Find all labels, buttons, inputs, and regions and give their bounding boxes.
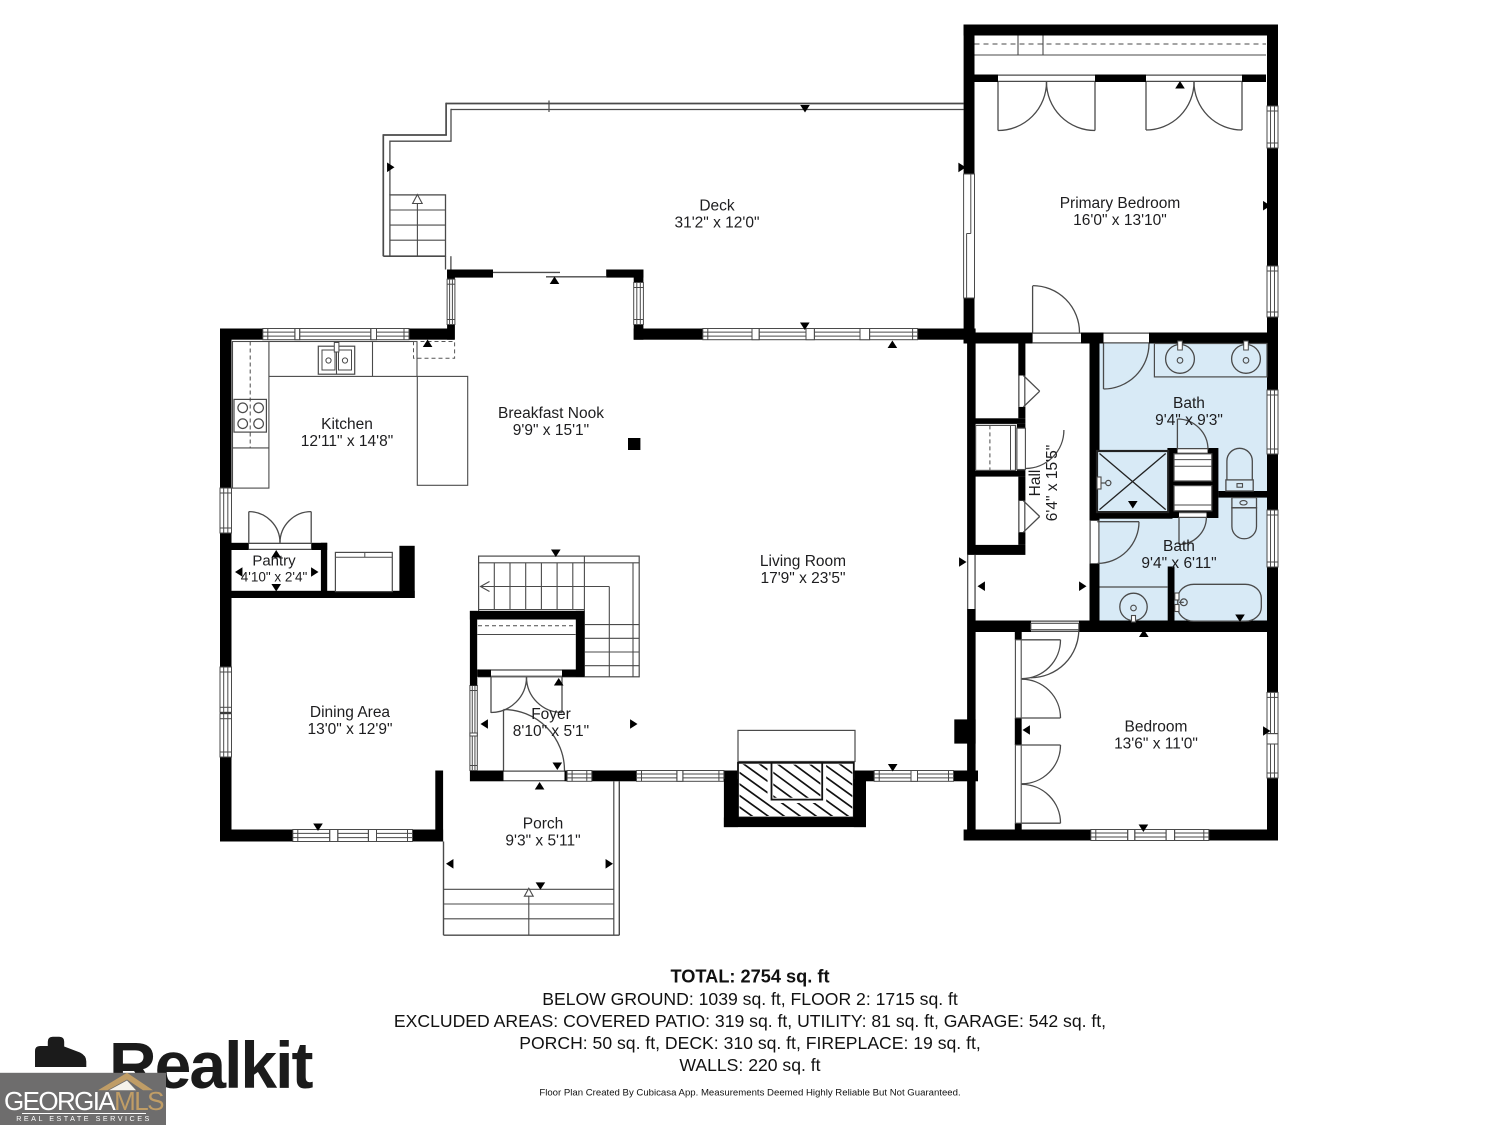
- svg-text:Foyer: Foyer: [531, 706, 571, 723]
- svg-text:TOTAL: 2754 sq. ft: TOTAL: 2754 sq. ft: [671, 967, 830, 987]
- svg-text:Floor Plan Created By Cubicasa: Floor Plan Created By Cubicasa App. Meas…: [539, 1088, 960, 1099]
- svg-text:9'4" x 9'3": 9'4" x 9'3": [1155, 412, 1223, 429]
- svg-text:PORCH: 50 sq. ft, DECK: 310 sq: PORCH: 50 sq. ft, DECK: 310 sq. ft, FIRE…: [519, 1033, 981, 1053]
- svg-text:Porch: Porch: [523, 816, 564, 833]
- svg-text:Kitchen: Kitchen: [321, 416, 373, 433]
- svg-text:17'9" x 23'5": 17'9" x 23'5": [760, 570, 845, 587]
- svg-text:Hall: Hall: [1027, 470, 1044, 497]
- svg-text:Bath: Bath: [1173, 395, 1205, 412]
- svg-text:9'3" x 5'11": 9'3" x 5'11": [505, 833, 580, 850]
- svg-text:Primary Bedroom: Primary Bedroom: [1060, 195, 1181, 212]
- svg-text:8'10" x 5'1": 8'10" x 5'1": [513, 723, 589, 740]
- svg-text:Bath: Bath: [1163, 538, 1195, 555]
- svg-text:Living Room: Living Room: [760, 553, 846, 570]
- svg-text:Bedroom: Bedroom: [1125, 719, 1188, 736]
- svg-text:6'4" x 15'5": 6'4" x 15'5": [1044, 445, 1061, 521]
- svg-text:9'4" x 6'11": 9'4" x 6'11": [1141, 555, 1216, 572]
- svg-text:REAL ESTATE SERVICES: REAL ESTATE SERVICES: [16, 1114, 152, 1123]
- svg-text:WALLS: 220 sq. ft: WALLS: 220 sq. ft: [679, 1055, 820, 1075]
- svg-text:EXCLUDED AREAS: COVERED PATIO:: EXCLUDED AREAS: COVERED PATIO: 319 sq. f…: [394, 1011, 1106, 1031]
- svg-text:13'0" x 12'9": 13'0" x 12'9": [307, 721, 392, 738]
- svg-text:12'11" x 14'8": 12'11" x 14'8": [301, 433, 393, 450]
- svg-text:13'6" x 11'0": 13'6" x 11'0": [1114, 736, 1198, 753]
- svg-text:9'9" x 15'1": 9'9" x 15'1": [513, 422, 589, 439]
- svg-text:31'2" x 12'0": 31'2" x 12'0": [674, 215, 759, 232]
- svg-text:BELOW GROUND: 1039 sq. ft, FLO: BELOW GROUND: 1039 sq. ft, FLOOR 2: 1715…: [542, 989, 958, 1009]
- svg-text:4'10" x 2'4": 4'10" x 2'4": [241, 570, 308, 585]
- svg-text:16'0" x 13'10": 16'0" x 13'10": [1073, 212, 1167, 229]
- svg-text:GEORGIAMLS: GEORGIAMLS: [4, 1086, 164, 1116]
- svg-text:Deck: Deck: [699, 198, 735, 215]
- svg-text:Pantry: Pantry: [252, 553, 296, 570]
- svg-text:Dining Area: Dining Area: [310, 704, 391, 721]
- svg-text:Breakfast Nook: Breakfast Nook: [498, 405, 604, 422]
